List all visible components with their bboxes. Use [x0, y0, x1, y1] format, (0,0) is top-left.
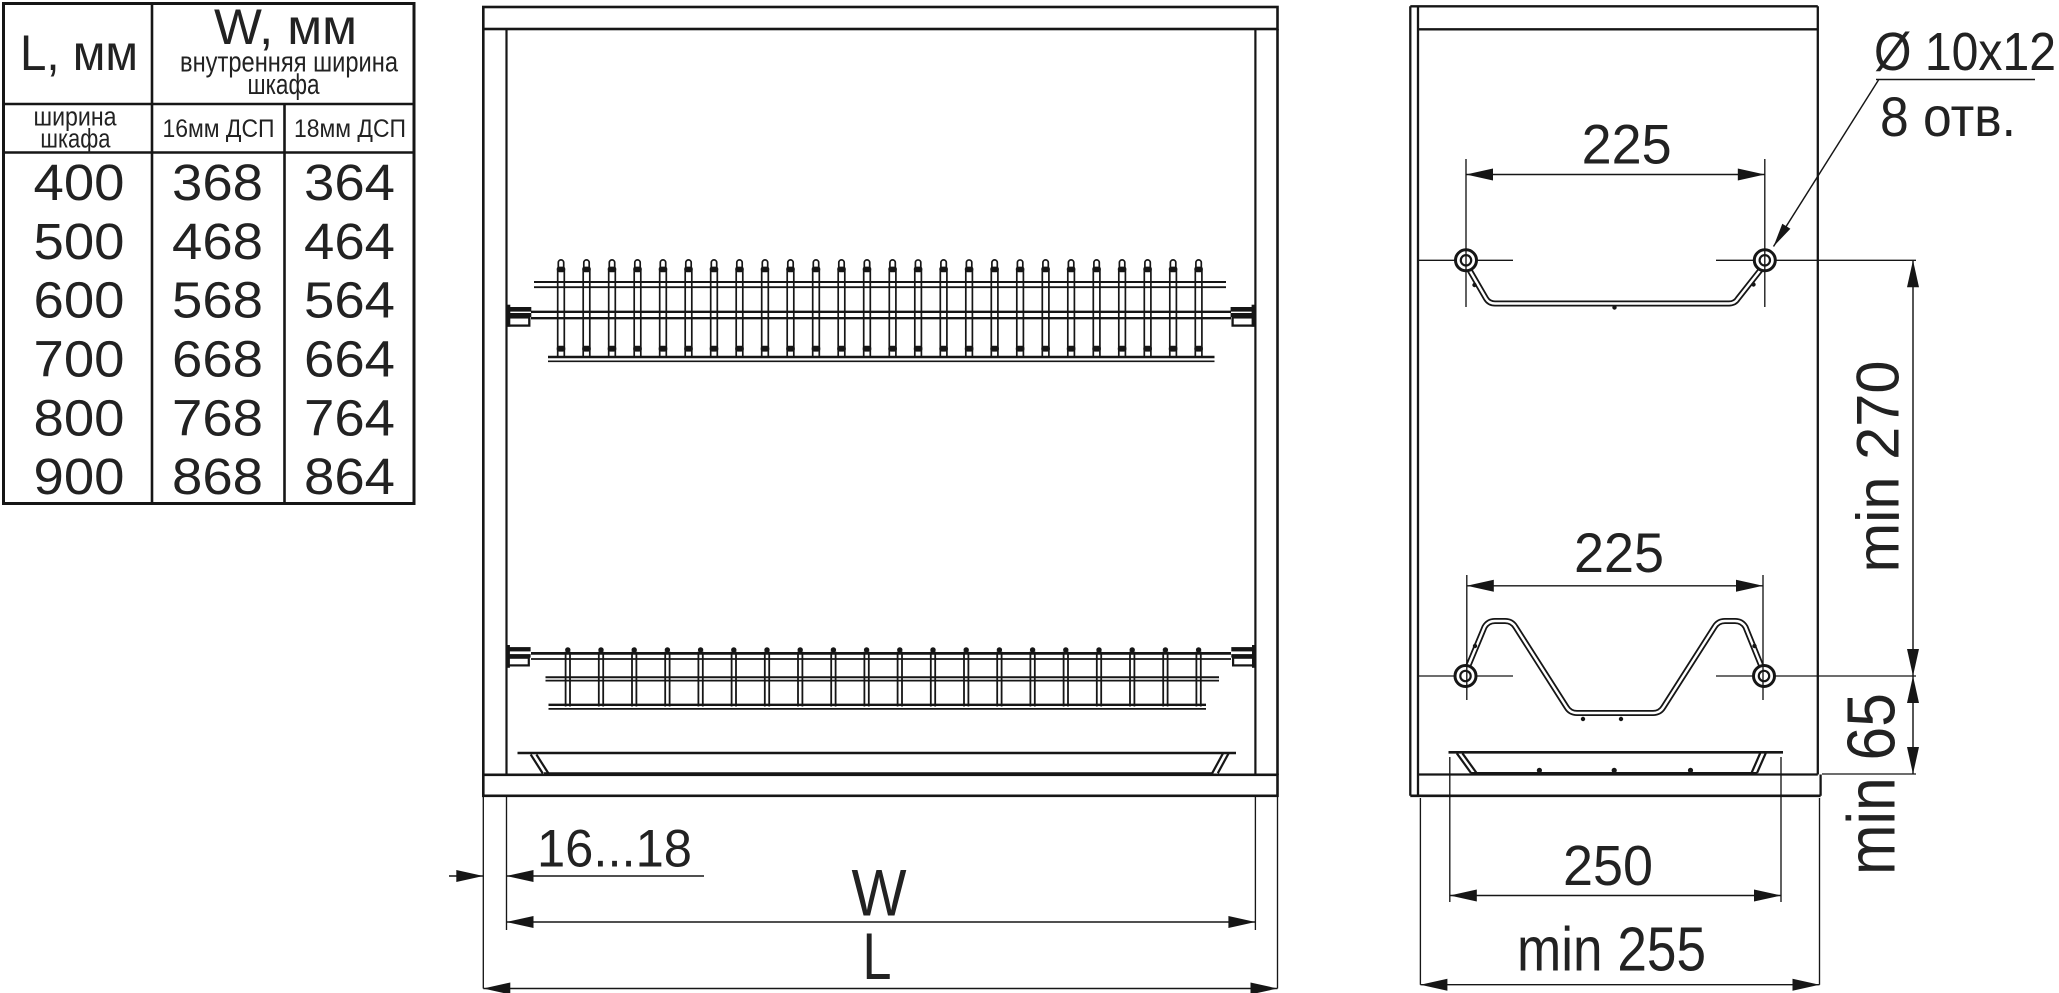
svg-text:250: 250	[1563, 834, 1653, 898]
svg-text:шкафа: шкафа	[248, 69, 321, 101]
svg-text:16...18: 16...18	[537, 820, 692, 879]
svg-text:шкафа: шкафа	[40, 124, 111, 154]
svg-text:800: 800	[34, 389, 125, 446]
svg-text:400: 400	[34, 154, 125, 211]
svg-text:364: 364	[304, 154, 395, 211]
svg-text:8 отв.: 8 отв.	[1880, 85, 2016, 148]
svg-text:900: 900	[34, 448, 125, 505]
svg-text:L: L	[863, 919, 892, 993]
svg-text:500: 500	[34, 213, 125, 270]
svg-text:864: 864	[304, 448, 395, 505]
svg-text:568: 568	[172, 272, 263, 329]
svg-text:468: 468	[172, 213, 263, 270]
svg-text:225: 225	[1582, 112, 1672, 175]
svg-text:764: 764	[304, 389, 395, 446]
svg-text:min 270: min 270	[1845, 361, 1912, 573]
svg-text:225: 225	[1574, 521, 1664, 584]
svg-text:464: 464	[304, 213, 395, 270]
svg-text:16мм ДСП: 16мм ДСП	[163, 115, 275, 143]
svg-text:664: 664	[304, 330, 395, 387]
svg-text:564: 564	[304, 272, 395, 329]
svg-text:668: 668	[172, 330, 263, 387]
svg-text:L, мм: L, мм	[20, 25, 138, 81]
svg-text:768: 768	[172, 389, 263, 446]
svg-text:868: 868	[172, 448, 263, 505]
svg-text:368: 368	[172, 154, 263, 211]
svg-text:18мм ДСП: 18мм ДСП	[294, 115, 406, 143]
svg-text:min 255: min 255	[1517, 916, 1706, 985]
svg-text:Ø 10x12: Ø 10x12	[1874, 22, 2056, 82]
svg-text:700: 700	[34, 330, 125, 387]
svg-text:600: 600	[34, 272, 125, 329]
svg-text:min 65: min 65	[1834, 693, 1910, 875]
